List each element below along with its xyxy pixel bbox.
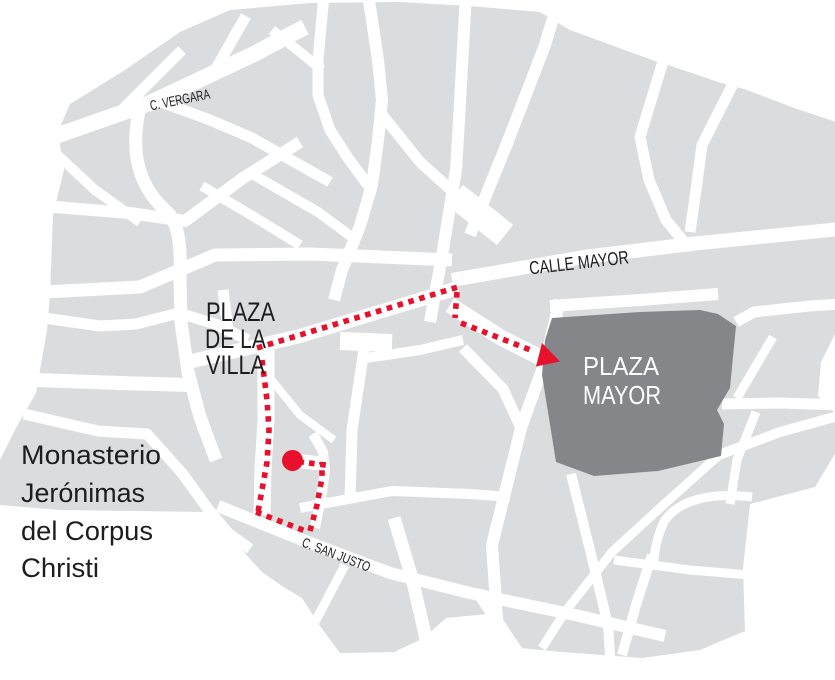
svg-text:Monasterio: Monasterio (21, 440, 161, 470)
svg-text:Christi: Christi (21, 553, 99, 583)
svg-text:del Corpus: del Corpus (21, 516, 153, 546)
svg-text:PLAZA: PLAZA (583, 351, 660, 381)
svg-text:PLAZA: PLAZA (206, 297, 275, 327)
svg-text:VILLA: VILLA (206, 350, 265, 380)
svg-text:MAYOR: MAYOR (583, 380, 661, 410)
svg-text:Jerónimas: Jerónimas (21, 478, 145, 508)
